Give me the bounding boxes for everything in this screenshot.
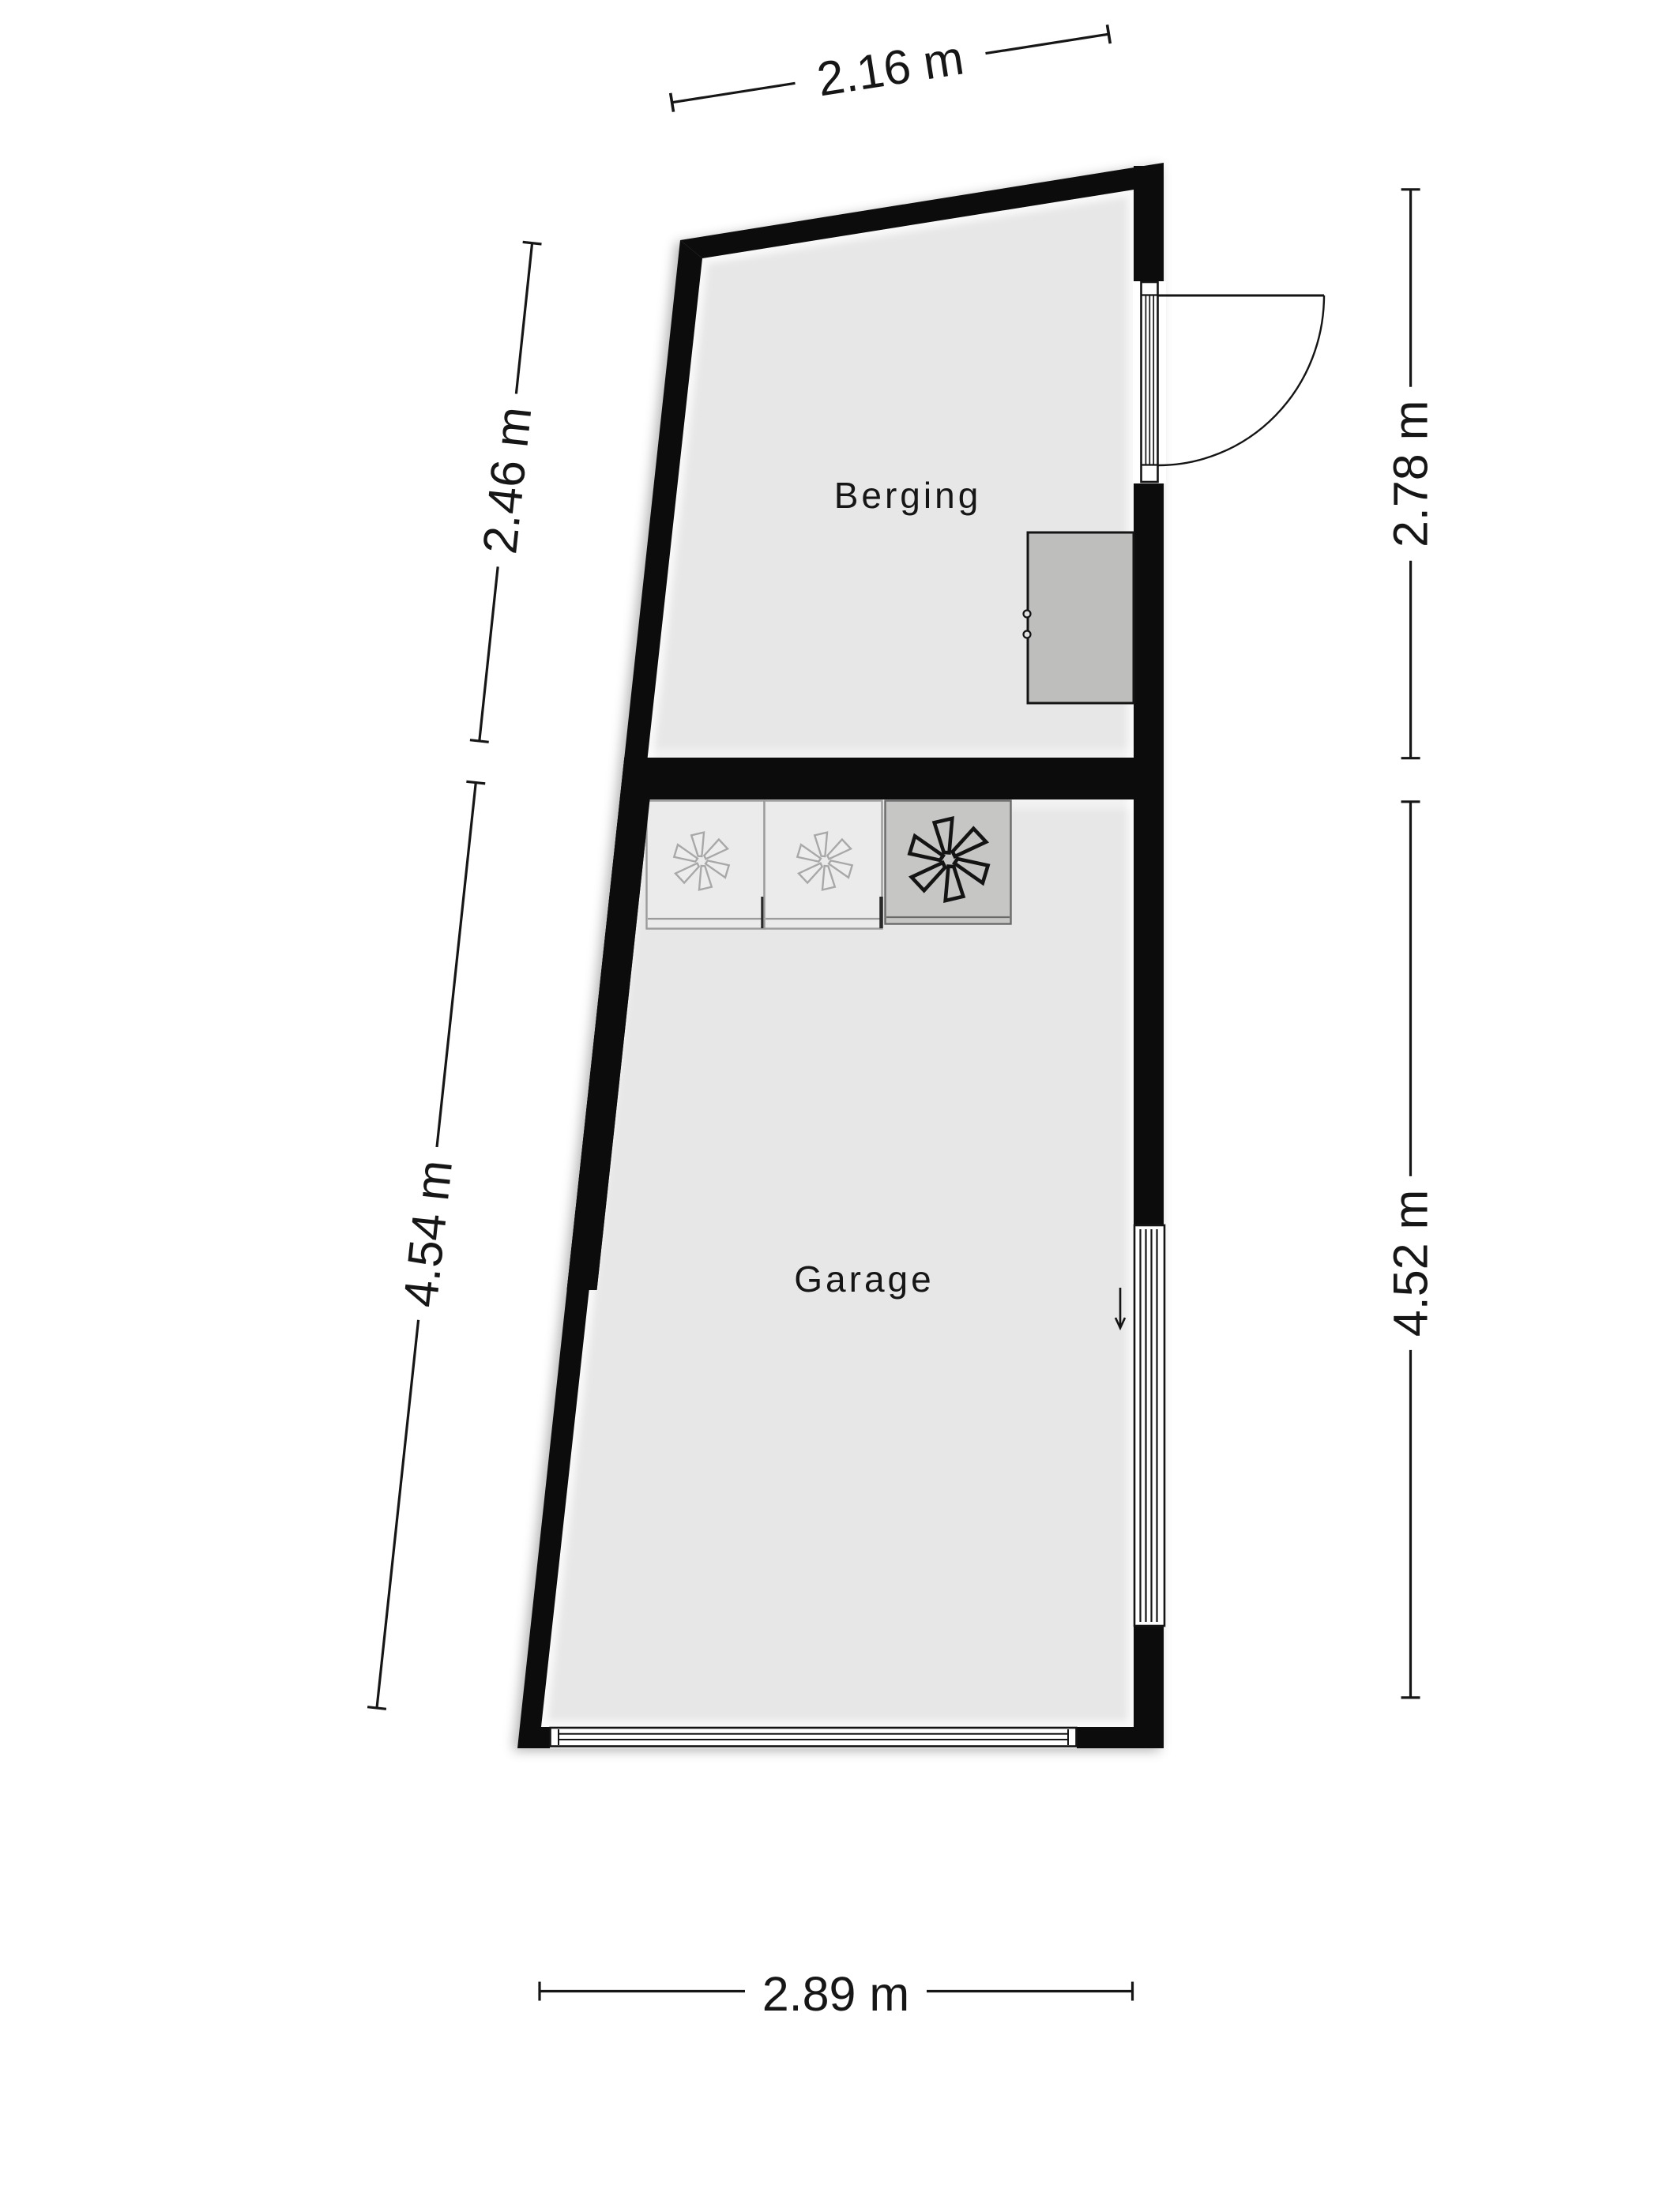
svg-text:2.89 m: 2.89 m: [762, 1967, 910, 2021]
svg-text:2.46 m: 2.46 m: [472, 404, 541, 557]
svg-text:2.16 m: 2.16 m: [814, 30, 968, 106]
svg-text:2.78 m: 2.78 m: [1384, 401, 1438, 548]
svg-text:Berging: Berging: [834, 475, 982, 516]
svg-text:4.52 m: 4.52 m: [1384, 1190, 1438, 1337]
svg-text:Garage: Garage: [794, 1258, 934, 1300]
svg-text:4.54 m: 4.54 m: [393, 1157, 462, 1310]
